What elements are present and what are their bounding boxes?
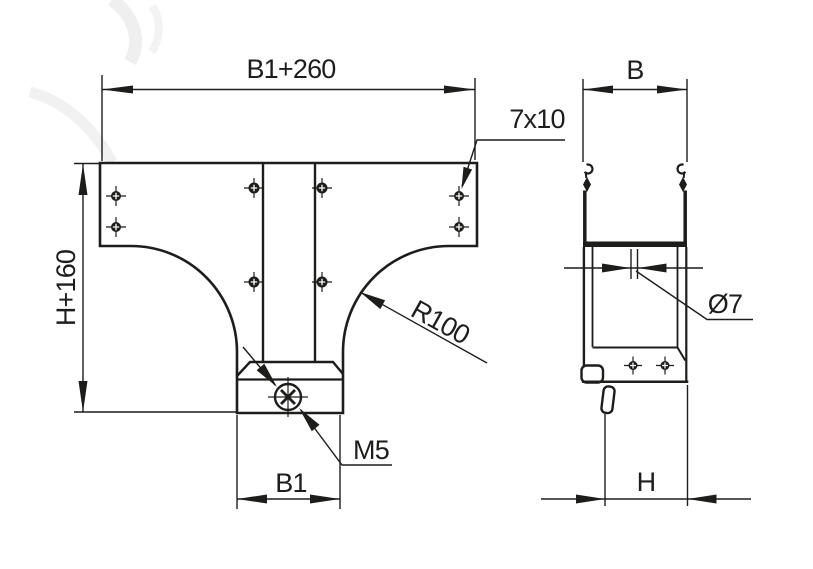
arrowhead bbox=[688, 495, 717, 504]
arrowhead bbox=[299, 408, 320, 431]
callout-thread: M5 bbox=[243, 347, 392, 465]
hole-markers-front bbox=[106, 178, 469, 292]
side-view: B bbox=[541, 55, 753, 506]
hole-edge-ticks bbox=[631, 249, 638, 279]
hook-neck bbox=[586, 173, 684, 179]
label-top-width: B1+260 bbox=[246, 54, 335, 84]
label-radius: R100 bbox=[406, 294, 474, 350]
extension-line bbox=[102, 75, 475, 161]
hole-marker bbox=[656, 357, 674, 375]
arrowhead bbox=[462, 167, 473, 189]
lower-body bbox=[582, 247, 689, 414]
arrowhead bbox=[310, 495, 340, 504]
arrowhead bbox=[657, 86, 687, 94]
label-height: H+160 bbox=[51, 250, 81, 326]
hook-curl-right bbox=[678, 164, 686, 173]
hole-marker bbox=[624, 357, 642, 375]
label-slot: 7x10 bbox=[509, 104, 564, 134]
hook-curl-left bbox=[585, 164, 593, 173]
hook-knob-left bbox=[583, 177, 591, 192]
dim-spout-width: B1 bbox=[237, 415, 340, 509]
hole-marker bbox=[106, 186, 126, 206]
clip-tab bbox=[601, 386, 615, 414]
hole-marker bbox=[244, 178, 264, 198]
extension-line bbox=[74, 164, 236, 413]
arrowhead bbox=[79, 381, 88, 412]
arrowhead bbox=[444, 86, 475, 94]
arrowhead bbox=[237, 495, 267, 504]
hole-marker bbox=[449, 217, 469, 237]
dim-height: H+160 bbox=[51, 164, 236, 413]
arrowhead bbox=[360, 292, 385, 309]
label-thread: M5 bbox=[353, 435, 389, 465]
arrowhead bbox=[576, 495, 605, 504]
label-side-width: B bbox=[626, 55, 643, 85]
dim-side-depth: H bbox=[541, 385, 751, 506]
dim-top-width: B1+260 bbox=[102, 54, 475, 161]
inner-bottom-edge bbox=[593, 348, 686, 361]
arrowhead bbox=[102, 86, 133, 94]
label-hole-diameter: Ø7 bbox=[708, 289, 742, 319]
arrowhead bbox=[638, 264, 667, 273]
front-view: B1+260 H+160 7x10 R100 M5 bbox=[51, 54, 565, 509]
label-spout-width: B1 bbox=[275, 468, 306, 498]
channel-profile bbox=[583, 164, 687, 247]
arrowhead bbox=[583, 86, 613, 94]
dim-side-width: B bbox=[583, 55, 687, 162]
arrowhead bbox=[602, 264, 631, 273]
hole-marker bbox=[244, 272, 264, 292]
hook-knob-right bbox=[679, 177, 687, 192]
arrowhead bbox=[79, 164, 88, 195]
foot-bracket bbox=[582, 366, 604, 383]
channel-bottom-section bbox=[583, 242, 687, 248]
part-outline bbox=[100, 163, 477, 413]
callout-radius: R100 bbox=[360, 292, 487, 363]
hole-marker bbox=[449, 186, 469, 206]
label-side-depth: H bbox=[637, 467, 656, 497]
boss-chamfer-edges bbox=[237, 362, 343, 376]
hole-marker bbox=[106, 217, 126, 237]
watermark bbox=[30, 0, 159, 162]
drawing-sheet: B1+260 H+160 7x10 R100 M5 bbox=[0, 0, 813, 569]
